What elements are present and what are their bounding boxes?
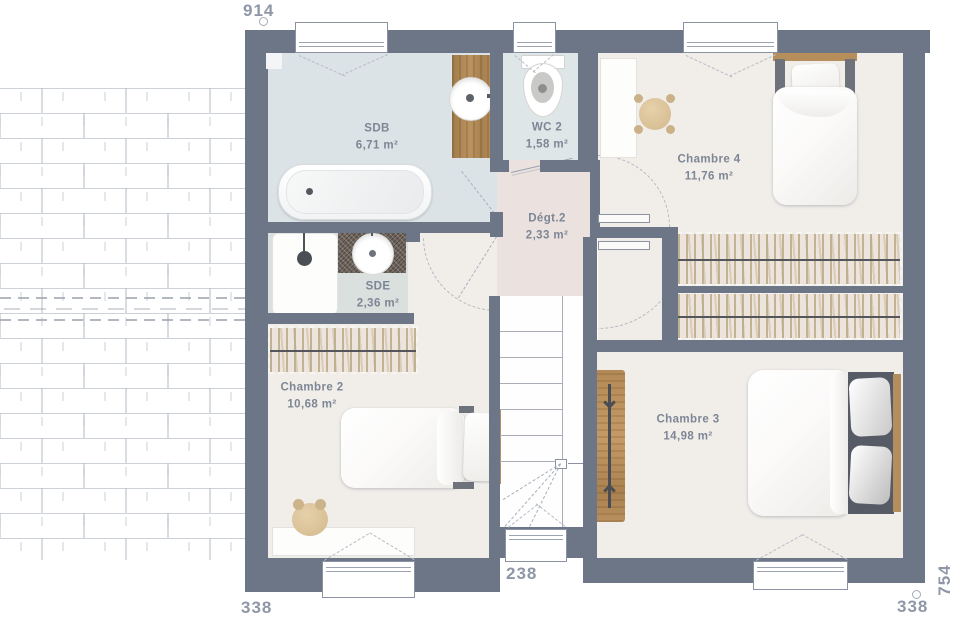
window-chambre4 (683, 22, 778, 53)
room-name: Chambre 3 (656, 411, 719, 428)
staircase-steps (499, 306, 562, 464)
bed-pillow (849, 377, 893, 437)
dimension-top: 914 (243, 1, 274, 21)
wardrobe-rod (678, 316, 900, 318)
staircase-stringer (562, 296, 563, 538)
room-label-sdb: SDB 6,71 m² (356, 120, 398, 153)
window-stairbay (505, 529, 567, 562)
wall-sde-pillar (406, 222, 420, 242)
dimension-marker (259, 17, 268, 26)
desk-chambre2 (272, 527, 415, 556)
wall-wardrobe-mid (676, 286, 903, 293)
wardrobe-chambre3 (678, 294, 900, 338)
bed-chambre2 (341, 405, 501, 490)
room-label-wc2: WC 2 1,58 m² (526, 119, 568, 152)
pouf-ear (293, 499, 304, 510)
roof-tiles (0, 88, 250, 560)
wall-sdb-sde (268, 222, 497, 233)
room-label-chambre2: Chambre 2 10,68 m² (280, 379, 343, 412)
pouf-knob (634, 94, 643, 103)
dimension-bottom-right: 338 (897, 597, 928, 617)
staircase-handline (568, 463, 584, 464)
pouf-ear (315, 499, 326, 510)
wall-corner-notch (266, 53, 282, 69)
wall-chambre2-top (268, 313, 414, 324)
room-label-chambre4: Chambre 4 11,76 m² (677, 151, 740, 184)
wall-degt-vestibule (490, 218, 503, 237)
door-leaf-chambre4 (598, 214, 650, 223)
room-label-degt2: Dégt.2 2,33 m² (526, 210, 568, 243)
room-area: 14,98 m² (656, 428, 719, 445)
pouf-chambre4 (639, 98, 671, 130)
bed-chambre4 (773, 53, 857, 205)
window-sdb (295, 22, 388, 53)
room-name: WC 2 (526, 119, 568, 136)
bed-chambre3 (748, 368, 902, 518)
room-area: 2,33 m² (526, 227, 568, 244)
room-area: 2,36 m² (357, 295, 399, 312)
sde-sink-drain (369, 250, 376, 257)
bed-footboard-wood (893, 374, 901, 512)
wall-sdb-wc (490, 53, 503, 162)
room-area: 11,76 m² (677, 168, 740, 185)
toilet-drain (538, 84, 547, 93)
dimension-marker (912, 590, 921, 599)
room-name: Chambre 4 (677, 151, 740, 168)
shower-drain (297, 251, 312, 266)
wall-sdb-degt-top (490, 162, 503, 172)
pouf-knob (666, 125, 675, 134)
room-area: 1,58 m² (526, 136, 568, 153)
room-area: 10,68 m² (280, 396, 343, 413)
room-name: SDB (356, 120, 398, 137)
desk-chambre4 (600, 58, 637, 158)
window-chambre2 (322, 561, 415, 598)
window-wc2 (513, 22, 556, 53)
bathtub-drain (306, 188, 313, 195)
wall-chambre3-top (597, 340, 903, 352)
dimension-right-vertical: 754 (935, 550, 955, 610)
wall-right (903, 30, 925, 583)
shower-tray (272, 233, 338, 315)
bed-pillow (849, 445, 893, 505)
door-leaf-corridor (598, 241, 650, 250)
dimension-bottom-center: 238 (506, 564, 537, 584)
pouf-knob (634, 125, 643, 134)
bed-post (453, 482, 474, 489)
dimension-bottom-left: 338 (241, 598, 272, 618)
wardrobe-rod (678, 259, 900, 261)
room-name: Chambre 2 (280, 379, 343, 396)
wardrobe-chambre4 (678, 234, 900, 284)
window-chambre3 (753, 561, 848, 590)
room-area: 6,71 m² (356, 137, 398, 154)
wall-left (245, 30, 268, 592)
room-name: SDE (357, 278, 399, 295)
room-label-sde: SDE 2,36 m² (357, 278, 399, 311)
vanity-sink-drain (466, 94, 474, 102)
wardrobe-chambre2 (270, 328, 416, 372)
bed-fold (437, 411, 463, 485)
shower-pipe (303, 231, 305, 253)
wall-stairs-right (583, 237, 597, 558)
room-name: Dégt.2 (526, 210, 568, 227)
wall-wc-chambre4 (578, 53, 598, 162)
floor-plan: SDB 6,71 m² WC 2 1,58 m² Chambre 4 11,76… (0, 0, 960, 624)
pouf-knob (666, 94, 675, 103)
room-label-chambre3: Chambre 3 14,98 m² (656, 411, 719, 444)
wall-stairs-left (489, 296, 500, 558)
wardrobe-rod (270, 350, 416, 352)
